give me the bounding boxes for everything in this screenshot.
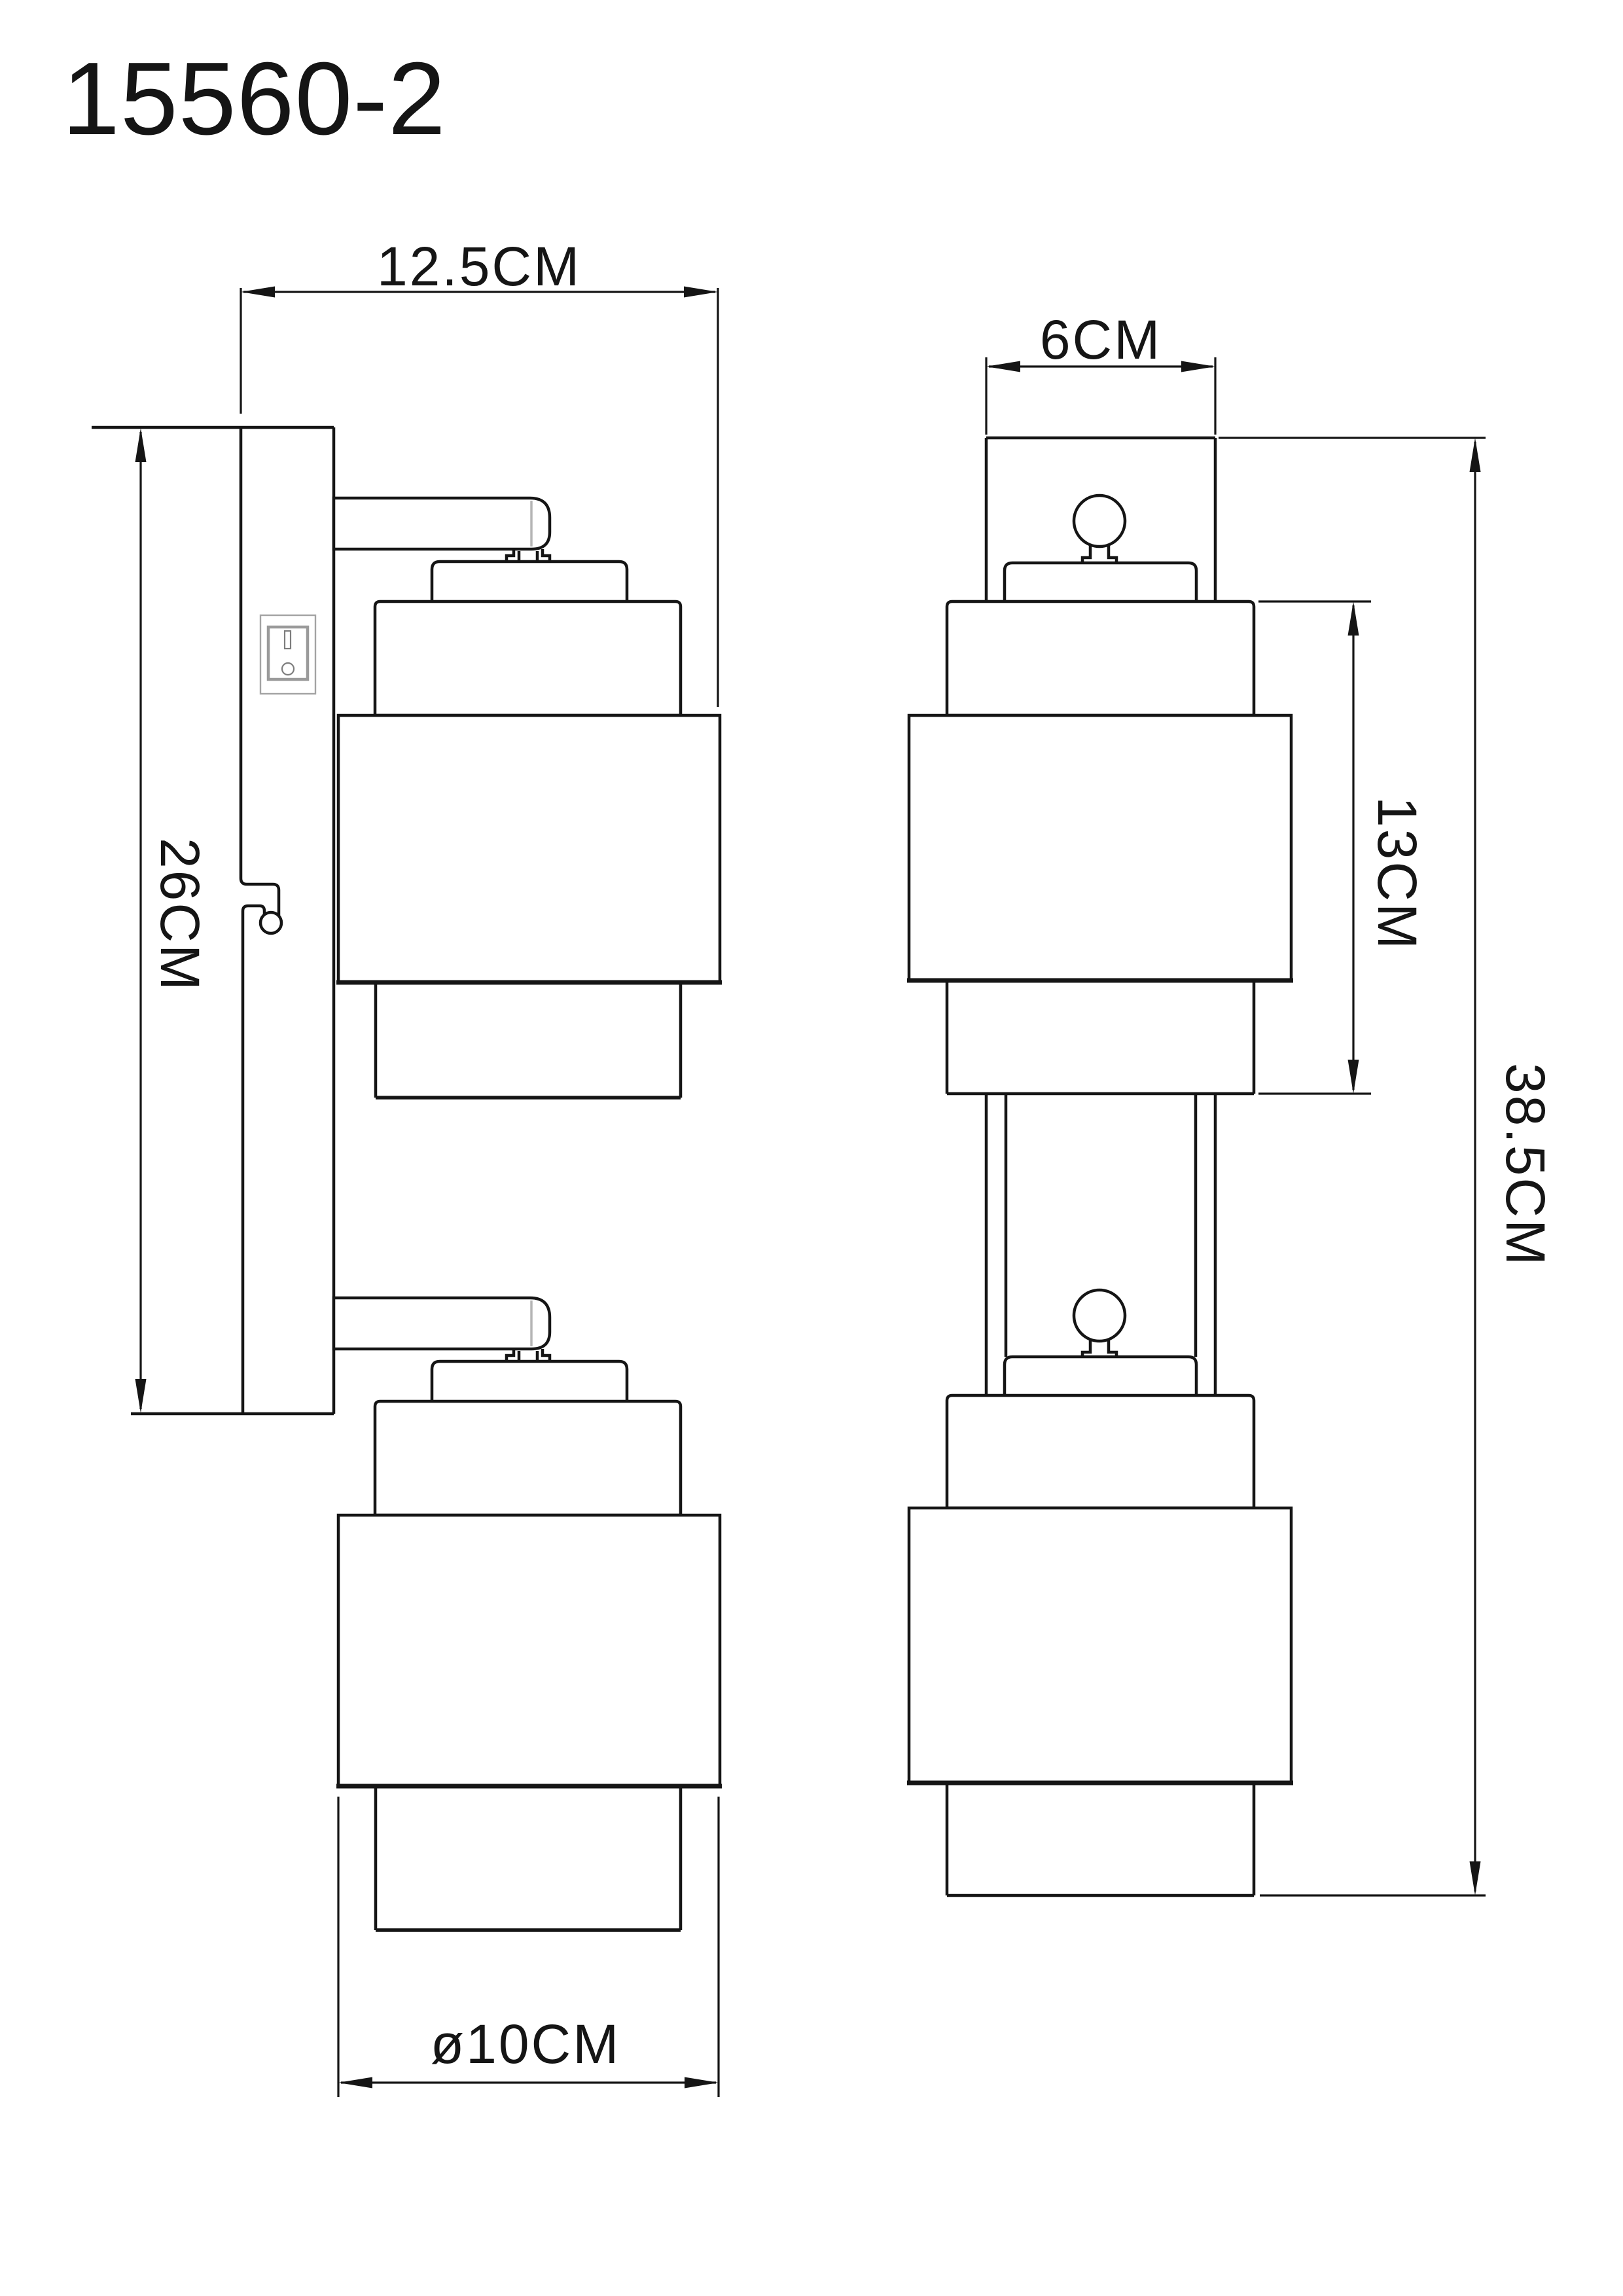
power-switch	[260, 615, 315, 694]
socket-cover	[1005, 563, 1196, 601]
switch-slot	[285, 631, 291, 649]
dimension-label-total-height: 38.5CM	[1495, 1063, 1556, 1267]
shade-top-cap	[947, 1395, 1254, 1508]
lamp-dimension-drawing: 15560-2	[0, 0, 1623, 2296]
side-view: 12.5CM 26CM ø10CM	[92, 236, 722, 2097]
connecting-stem	[986, 1094, 1215, 1395]
switch-rocker	[268, 627, 308, 679]
shade-top-cap	[375, 601, 681, 715]
shade-band	[338, 1515, 720, 1786]
shade-band	[909, 1508, 1291, 1783]
upper-lamp-front	[907, 495, 1293, 1094]
dimension-label-plate-depth: 12.5CM	[377, 236, 581, 297]
dimension-label-plate-width: 6CM	[1040, 309, 1162, 370]
front-view: 6CM 13CM 38.5CM	[907, 309, 1556, 1895]
lamp-arm	[334, 1298, 550, 1349]
dimension-label-plate-height: 26CM	[149, 838, 211, 992]
shade-band	[909, 715, 1291, 980]
dimension-plate-height: 26CM	[135, 428, 211, 1413]
wall-plate	[92, 427, 334, 1414]
upper-lamp-side	[334, 498, 722, 1098]
mounting-keyhole	[260, 912, 281, 933]
bulb	[1074, 1290, 1125, 1341]
technical-drawing-page: 15560-2	[0, 0, 1623, 2296]
lamp-arm	[334, 498, 550, 549]
bulb	[1074, 495, 1125, 547]
socket-cover	[1005, 1357, 1196, 1395]
shade-top-cap	[375, 1401, 681, 1515]
dimension-label-shade-diameter: ø10CM	[431, 2013, 620, 2075]
arm-neck	[507, 1349, 550, 1361]
dimension-plate-width: 6CM	[986, 309, 1215, 435]
dimension-shade-diameter: ø10CM	[338, 1797, 719, 2097]
socket-cover	[432, 562, 627, 601]
switch-dot	[282, 663, 294, 675]
socket-cover	[432, 1361, 627, 1401]
product-code: 15560-2	[62, 41, 446, 156]
lower-lamp-front	[907, 1290, 1293, 1895]
lower-lamp-side	[334, 1298, 722, 1930]
shade-band	[338, 715, 720, 982]
dimension-label-head-height: 13CM	[1366, 797, 1428, 951]
arm-neck	[507, 549, 550, 562]
shade-top-cap	[947, 601, 1254, 715]
